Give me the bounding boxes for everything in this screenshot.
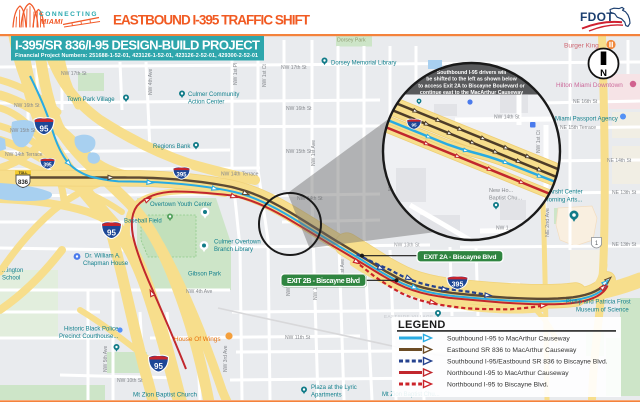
svg-text:NW 5th Ave: NW 5th Ave bbox=[103, 345, 109, 372]
svg-text:Southbound I-95 drivers will: Southbound I-95 drivers will bbox=[437, 70, 507, 76]
svg-text:to access Exit 2A to Biscayne: to access Exit 2A to Biscayne Boulevard … bbox=[418, 83, 524, 89]
svg-text:House Of Wings: House Of Wings bbox=[174, 336, 221, 343]
svg-text:NW 17th St: NW 17th St bbox=[281, 65, 307, 71]
svg-text:NW 14th Terrace: NW 14th Terrace bbox=[221, 172, 259, 178]
svg-text:Southbound I-95/Eastbound SR 8: Southbound I-95/Eastbound SR 836 to Bisc… bbox=[447, 358, 608, 365]
svg-text:LEGEND: LEGEND bbox=[398, 319, 446, 331]
svg-text:Financial Project Numbers: 251: Financial Project Numbers: 251688-1-52-0… bbox=[15, 53, 258, 59]
svg-text:NE 13th St: NE 13th St bbox=[612, 242, 637, 248]
svg-text:EXIT 2A - Biscayne Blvd: EXIT 2A - Biscayne Blvd bbox=[424, 254, 497, 261]
svg-text:NW 1st Pl: NW 1st Pl bbox=[233, 63, 239, 85]
svg-text:MIAMI: MIAMI bbox=[40, 17, 63, 26]
svg-text:continue east to the MacArthur: continue east to the MacArthur Causeway bbox=[420, 90, 523, 96]
svg-text:395: 395 bbox=[452, 282, 464, 289]
svg-text:Miami Passport Agency: Miami Passport Agency bbox=[555, 117, 618, 123]
svg-text:Action Center: Action Center bbox=[188, 100, 224, 106]
svg-text:Dorsey Memorial Library: Dorsey Memorial Library bbox=[331, 61, 396, 67]
svg-text:Apartments: Apartments bbox=[311, 393, 342, 399]
svg-text:Northbound I-95 to Biscayne Bl: Northbound I-95 to Biscayne Blvd. bbox=[447, 381, 549, 388]
svg-text:N: N bbox=[600, 68, 607, 79]
svg-text:NW 17th St: NW 17th St bbox=[61, 71, 87, 77]
svg-text:NW 15th St: NW 15th St bbox=[286, 149, 312, 155]
svg-text:NW 16th St: NW 16th St bbox=[14, 103, 40, 109]
svg-text:NE 2nd Ave: NE 2nd Ave bbox=[545, 208, 551, 237]
svg-text:NE 14th St: NE 14th St bbox=[607, 158, 632, 164]
svg-text:Eastbound SR 836 to MacArthur: Eastbound SR 836 to MacArthur Causeway bbox=[447, 347, 577, 354]
svg-text:NW 4th Ave: NW 4th Ave bbox=[148, 68, 154, 95]
svg-text:EASTBOUND I-395 TRAFFIC SHIFT: EASTBOUND I-395 TRAFFIC SHIFT bbox=[113, 13, 311, 28]
svg-text:Historic Black Police: Historic Black Police bbox=[64, 327, 119, 333]
svg-text:Arsht Center: Arsht Center bbox=[549, 190, 583, 196]
svg-text:New Ho...: New Ho... bbox=[489, 188, 514, 194]
svg-text:TOLL: TOLL bbox=[19, 171, 28, 175]
svg-text:Gibson Park: Gibson Park bbox=[188, 272, 222, 278]
svg-text:...ington: ...ington bbox=[2, 268, 23, 274]
svg-text:Northbound I-95 to MacArthur C: Northbound I-95 to MacArthur Causeway bbox=[447, 370, 569, 377]
svg-text:Chapman House: Chapman House bbox=[83, 261, 129, 267]
svg-text:395: 395 bbox=[176, 173, 187, 179]
svg-text:NW 10th St: NW 10th St bbox=[117, 378, 143, 384]
svg-text:NW 1st Ct: NW 1st Ct bbox=[536, 130, 542, 153]
svg-text:Culmer Overtown: Culmer Overtown bbox=[214, 240, 261, 246]
svg-text:Burger King: Burger King bbox=[564, 43, 599, 50]
svg-text:be shifted to the left as show: be shifted to the left as shown below bbox=[426, 77, 517, 83]
svg-text:Hilton Miami Downtown: Hilton Miami Downtown bbox=[556, 82, 623, 89]
svg-text:395: 395 bbox=[43, 163, 52, 169]
svg-text:NW 1st Ct: NW 1st Ct bbox=[262, 64, 268, 87]
svg-text:Baptist Chu...: Baptist Chu... bbox=[489, 196, 522, 202]
svg-text:Branch Library: Branch Library bbox=[214, 247, 253, 253]
svg-text:NW 13th St: NW 13th St bbox=[394, 243, 420, 249]
svg-text:Town Park Village: Town Park Village bbox=[67, 97, 115, 103]
svg-text:Overtown Youth Center: Overtown Youth Center bbox=[150, 202, 212, 208]
svg-text:NE 15th Terrace: NE 15th Terrace bbox=[560, 125, 596, 131]
svg-text:forning Arts...: forning Arts... bbox=[547, 198, 583, 204]
svg-text:NW 15th St: NW 15th St bbox=[10, 128, 36, 134]
svg-text:Southbound I-95 to MacArthur C: Southbound I-95 to MacArthur Causeway bbox=[447, 335, 570, 342]
svg-text:EXIT 2B - Biscayne Blvd: EXIT 2B - Biscayne Blvd bbox=[287, 278, 360, 285]
svg-text:NW 14th St: NW 14th St bbox=[494, 115, 520, 121]
svg-text:NW 1st Ave: NW 1st Ave bbox=[311, 140, 317, 166]
svg-text:Culmer Community: Culmer Community bbox=[188, 92, 239, 98]
svg-text:Dr. William A.: Dr. William A. bbox=[85, 254, 121, 260]
svg-text:Precinct Courthouse...: Precinct Courthouse... bbox=[59, 334, 119, 340]
svg-text:836: 836 bbox=[18, 180, 29, 186]
svg-text:NE 16th St: NE 16th St bbox=[573, 99, 598, 105]
svg-text:Plaza at the Lyric: Plaza at the Lyric bbox=[311, 385, 357, 391]
svg-text:95: 95 bbox=[154, 362, 163, 371]
svg-text:95: 95 bbox=[40, 125, 49, 134]
svg-text:Baseball Field: Baseball Field bbox=[124, 219, 162, 225]
svg-text:Museum of Science: Museum of Science bbox=[576, 308, 629, 314]
svg-text:NW 11th St: NW 11th St bbox=[285, 335, 311, 341]
svg-text:95: 95 bbox=[107, 229, 116, 238]
svg-text:NW 16th St: NW 16th St bbox=[286, 106, 312, 112]
svg-text:95: 95 bbox=[411, 123, 417, 128]
svg-text:NW 14th Terrace: NW 14th Terrace bbox=[5, 152, 43, 158]
svg-text:NE 13th St: NE 13th St bbox=[612, 190, 637, 196]
svg-text:Phillip and Patricia Frost: Phillip and Patricia Frost bbox=[566, 300, 631, 306]
svg-text:School: School bbox=[2, 276, 20, 282]
svg-text:NW 4th Ave: NW 4th Ave bbox=[186, 289, 213, 295]
svg-text:NW 3rd Ave: NW 3rd Ave bbox=[223, 345, 229, 372]
svg-text:Mt Zion Baptist Church: Mt Zion Baptist Church bbox=[133, 392, 198, 399]
svg-text:I-395/SR 836/I-95 DESIGN-BUILD: I-395/SR 836/I-95 DESIGN-BUILD PROJECT bbox=[15, 38, 260, 53]
svg-text:Dorsey Park: Dorsey Park bbox=[337, 38, 366, 44]
svg-text:Regions Bank: Regions Bank bbox=[153, 144, 191, 150]
